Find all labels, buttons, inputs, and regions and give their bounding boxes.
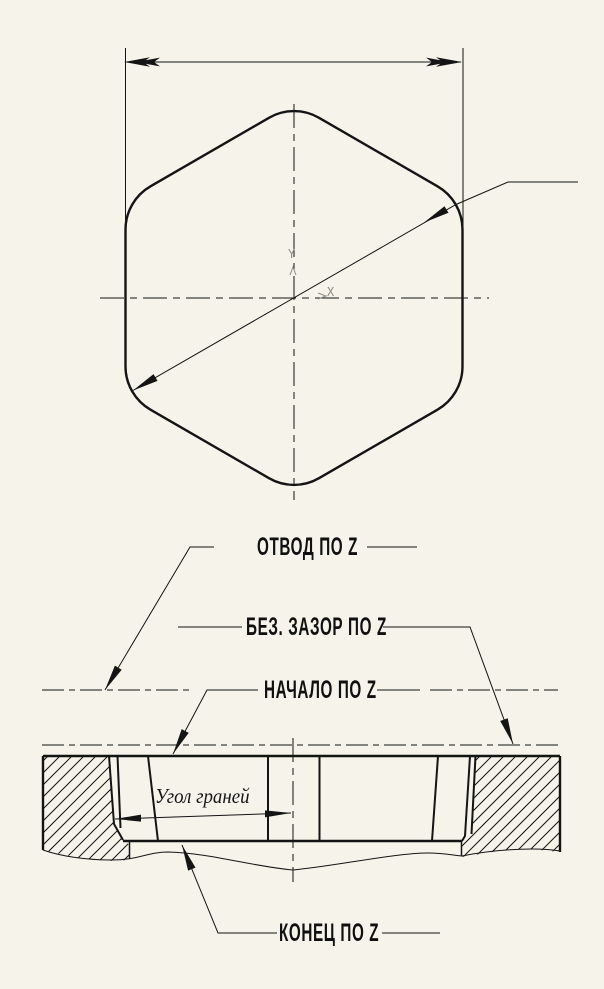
corner-dimension-leader-line: [133, 182, 578, 391]
callout-start-z-label: НАЧАЛО ПО Z: [264, 678, 377, 703]
cad-drawing-canvas: Y X ОТВОД ПО Z БЕЗ. ЗАЗОР ПО Z НАЧАЛО ПО…: [0, 0, 604, 989]
section-view: [0, 547, 604, 933]
top-view: [100, 48, 578, 500]
drawing-linework: [0, 0, 604, 989]
axis-y-label: Y: [288, 248, 295, 260]
start-z-arrow-icon: [173, 729, 189, 754]
axis-y-arrow-icon: [290, 267, 296, 275]
end-z-arrow-icon: [182, 845, 196, 871]
callout-end-z-label: КОНЕЦ ПО Z: [279, 921, 379, 946]
hatch-right: [354, 740, 604, 870]
face-angle-arrow-right-icon: [265, 810, 291, 817]
face-angle-dimension-line: [115, 813, 291, 819]
retract-z-arrow-icon: [105, 666, 122, 690]
callout-retract-z-label: ОТВОД ПО Z: [257, 535, 358, 560]
callout-safe-clearance-z-label: БЕЗ. ЗАЗОР ПО Z: [246, 615, 387, 640]
axis-x-label: X: [327, 286, 334, 298]
face-angle-arrow-left-icon: [115, 815, 141, 822]
corner-arrow-lower-left-icon: [133, 374, 158, 390]
corner-arrow-upper-right-icon: [424, 206, 449, 222]
safe-clearance-z-arrow-icon: [500, 718, 513, 744]
face-angle-label: Угол граней: [155, 785, 250, 807]
floor-corner-stubs: [130, 841, 462, 859]
